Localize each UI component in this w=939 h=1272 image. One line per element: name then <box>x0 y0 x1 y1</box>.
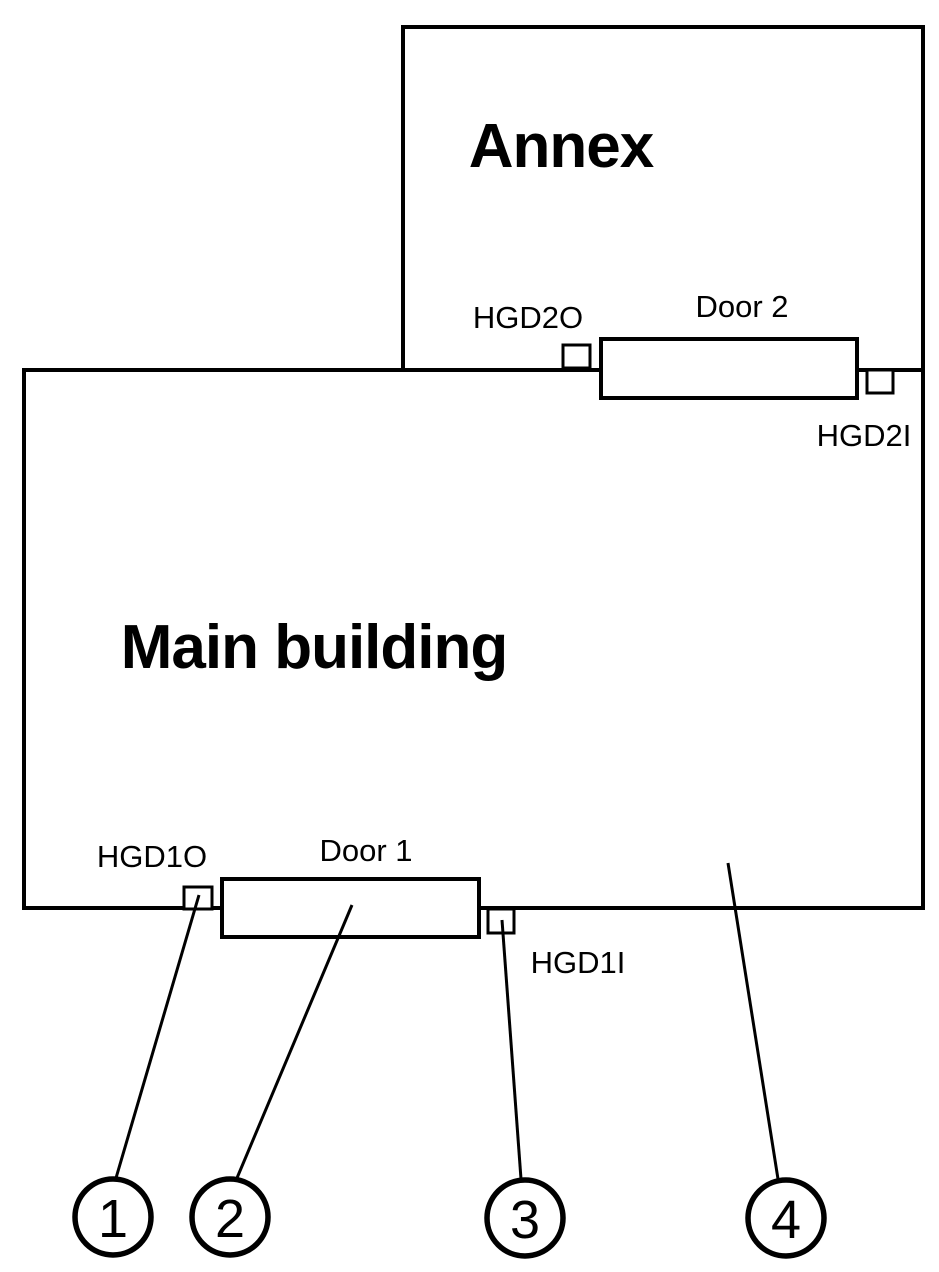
diagram-canvas: Annex Main building HGD2O Door 2 HGD2I H… <box>0 0 939 1272</box>
callout-1-leader-line <box>116 895 199 1178</box>
hgd2i-label: HGD2I <box>817 418 912 453</box>
door-1-label: Door 1 <box>319 833 412 868</box>
hgd1i-label: HGD1I <box>531 945 626 980</box>
door-2-label: Door 2 <box>695 289 788 324</box>
callout-3-number: 3 <box>510 1190 540 1250</box>
door-2-rect <box>601 339 857 398</box>
hgd2o-marker <box>563 345 590 368</box>
callout-1-number: 1 <box>98 1189 128 1249</box>
floor-plan-diagram: Annex Main building HGD2O Door 2 HGD2I H… <box>0 0 939 1272</box>
hgd1o-label: HGD1O <box>97 839 207 874</box>
callout-2-number: 2 <box>215 1189 245 1249</box>
hgd2i-marker <box>867 370 893 393</box>
main-building-label: Main building <box>121 613 508 682</box>
callout-4-leader-line <box>728 863 778 1179</box>
annex-label: Annex <box>469 112 655 181</box>
callout-4-number: 4 <box>771 1190 801 1250</box>
callout-3-leader-line <box>502 920 521 1179</box>
hgd2o-label: HGD2O <box>473 300 583 335</box>
callout-2-leader-line <box>237 905 352 1178</box>
